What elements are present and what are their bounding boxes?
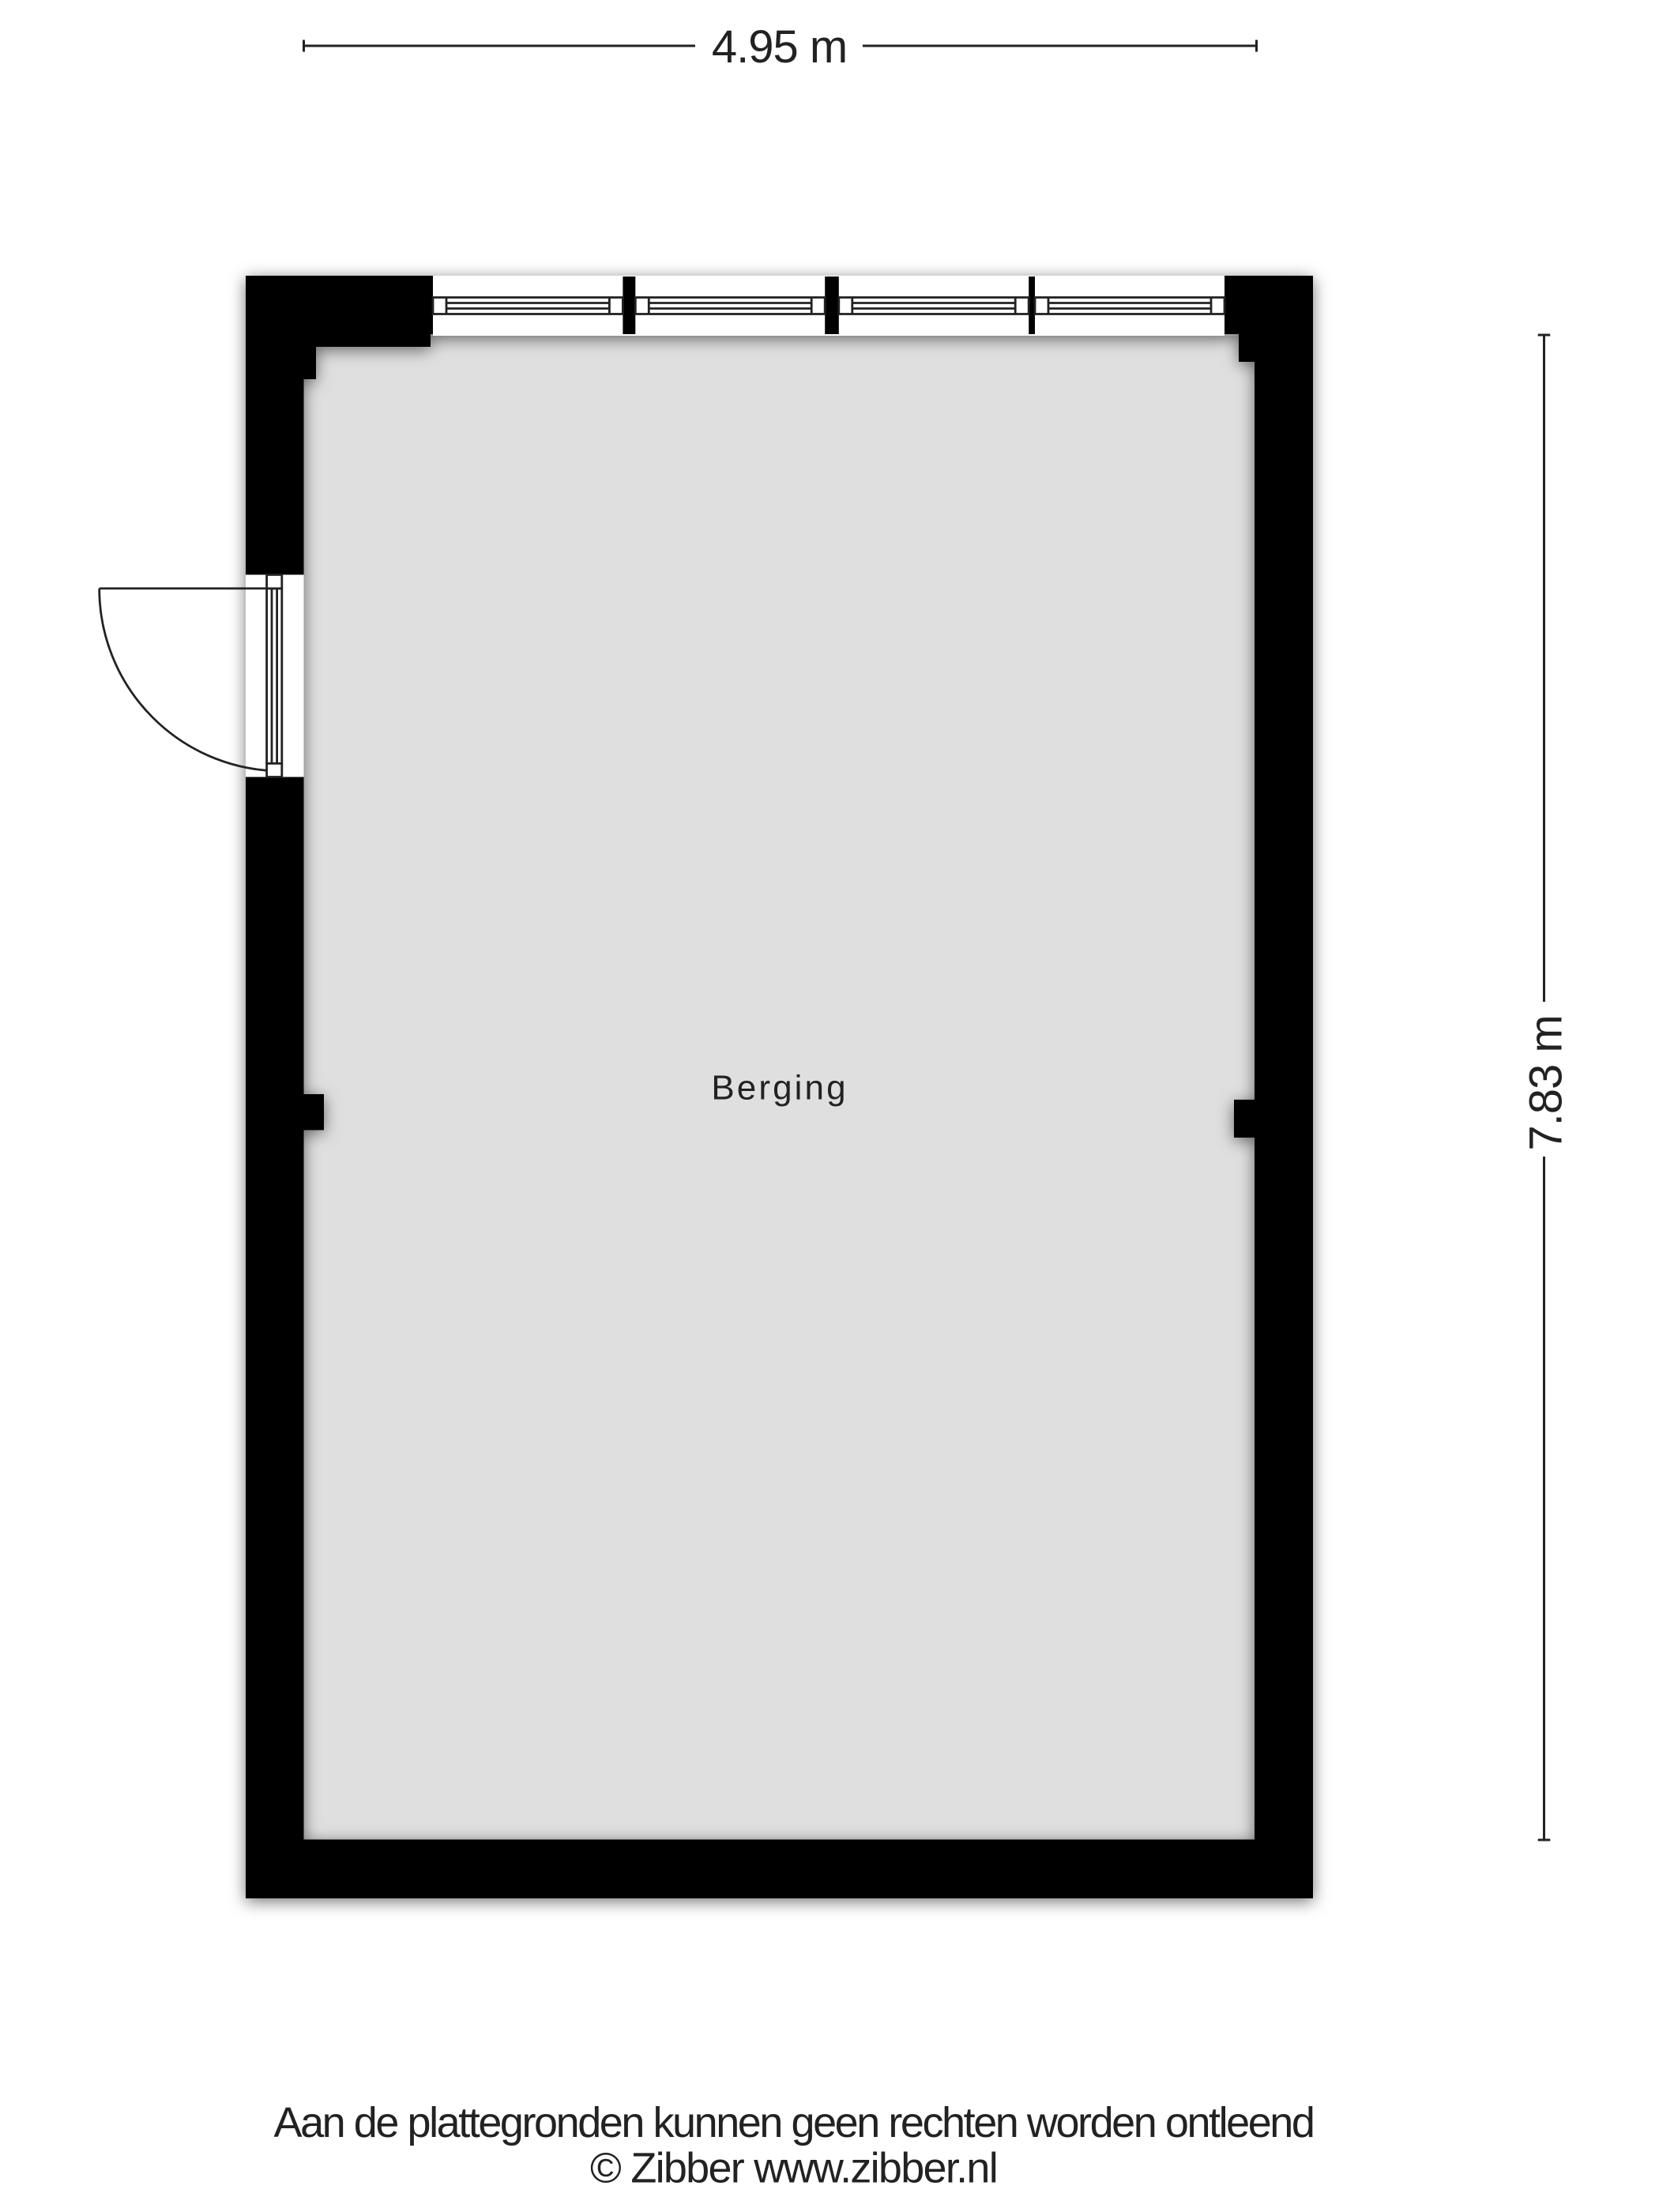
svg-text:Berging: Berging <box>711 1069 848 1108</box>
svg-text:4.95 m: 4.95 m <box>712 21 847 73</box>
svg-text:© Zibber www.zibber.nl: © Zibber www.zibber.nl <box>590 2145 997 2192</box>
svg-text:Aan de plattegronden kunnen ge: Aan de plattegronden kunnen geen rechten… <box>274 2099 1314 2146</box>
svg-text:7.83 m: 7.83 m <box>1521 1015 1572 1150</box>
